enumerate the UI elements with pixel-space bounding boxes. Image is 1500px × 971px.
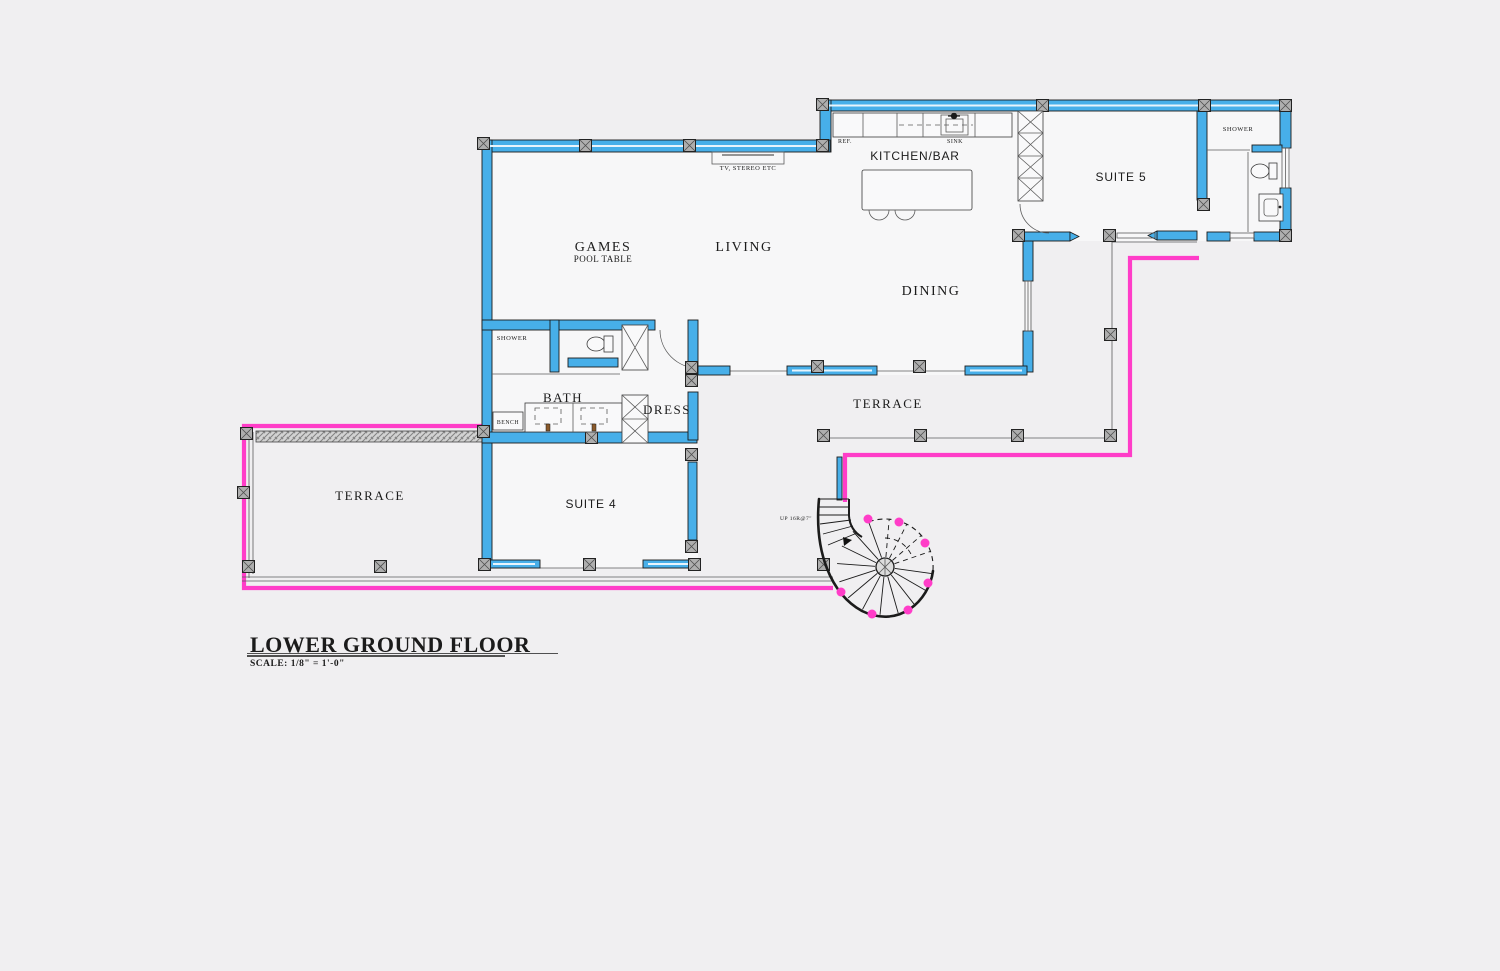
vanity-counter — [525, 403, 622, 432]
room-label-living: LIVING — [715, 240, 772, 255]
floor-plan-sheet: GAMES POOL TABLE LIVING KITCHEN/BAR DINI… — [0, 0, 1500, 971]
kitchen-island — [862, 170, 972, 210]
room-label-suite4: SUITE 4 — [566, 497, 617, 511]
toilet-bowl — [1251, 164, 1269, 178]
label-sink: SINK — [947, 139, 963, 145]
label-ref: REF. — [838, 139, 852, 145]
room-label-suite5: SUITE 5 — [1096, 170, 1147, 184]
room-sublabel-pool-table: POOL TABLE — [574, 254, 633, 264]
gravel-strip — [256, 431, 486, 442]
label-stair-up: UP 16R@7" — [780, 516, 812, 522]
room-label-terrace-left: TERRACE — [335, 488, 405, 503]
room-label-dress: DRESS — [643, 402, 691, 417]
room-label-games: GAMES — [575, 240, 632, 255]
kitchen-counter — [833, 113, 1012, 137]
label-bench: BENCH — [497, 420, 519, 426]
floor-plan-drawing: GAMES POOL TABLE LIVING KITCHEN/BAR DINI… — [0, 0, 1500, 971]
room-label-dining: DINING — [902, 284, 961, 299]
label-tv-stereo: TV, STEREO ETC — [720, 165, 777, 172]
scale-note: SCALE: 1/8" = 1'-0" — [250, 659, 345, 669]
room-label-shower-suite5: SHOWER — [1223, 126, 1254, 133]
toilet-tank — [604, 336, 613, 352]
room-label-terrace-right: TERRACE — [853, 396, 923, 411]
room-label-kitchen: KITCHEN/BAR — [870, 149, 959, 163]
room-label-bath: BATH — [543, 390, 583, 405]
room-label-shower-bath: SHOWER — [497, 335, 528, 342]
toilet-bowl — [587, 337, 605, 351]
toilet-tank — [1269, 163, 1277, 179]
